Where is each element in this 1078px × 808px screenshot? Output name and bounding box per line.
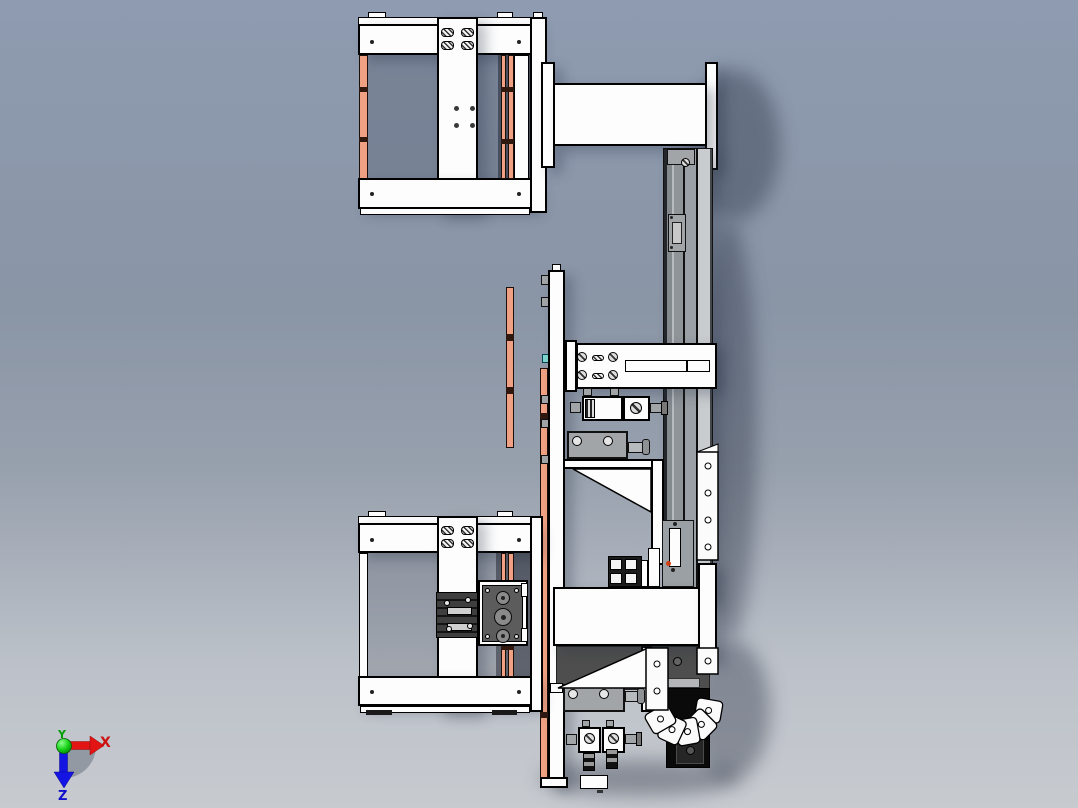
slot-hole: [461, 526, 474, 535]
frame-foot: [366, 710, 392, 715]
bracket-strip: [669, 528, 681, 567]
valve-port: [630, 402, 642, 414]
rail-side-bracket-face: [672, 222, 682, 244]
arm-long-slot: [625, 360, 710, 372]
air-nozzle: [606, 749, 618, 769]
fitting-stub: [566, 734, 577, 745]
solenoid-cap: [610, 559, 622, 570]
solenoid-cap: [625, 559, 637, 570]
upper-frame-right-bracket[interactable]: [514, 55, 529, 179]
pin-hole: [454, 106, 459, 111]
copper-break: [506, 387, 514, 394]
x-axis-arrowhead: [90, 736, 104, 755]
slot-hole: [441, 28, 454, 37]
slot-hole: [441, 41, 454, 50]
screw-dot: [370, 538, 374, 542]
slot-hole: [461, 41, 474, 50]
screw-dot: [517, 40, 521, 44]
triad-quarter-disc: [64, 746, 96, 778]
upper-frame-tab: [368, 12, 386, 18]
gripper-screw: [467, 623, 473, 629]
copper-break: [501, 139, 514, 144]
upper-frame-bottom-bar[interactable]: [358, 178, 535, 209]
copper-break: [506, 334, 514, 341]
gripper-screw: [514, 588, 519, 593]
lower-frame-bottom-bar[interactable]: [358, 676, 535, 706]
z-axis-label: Z: [58, 789, 67, 804]
valve-port: [608, 733, 619, 744]
orange-indicator: [666, 561, 671, 566]
screw-dot: [370, 192, 374, 196]
valve-port: [584, 733, 595, 744]
shadow: [540, 760, 740, 796]
frame-foot: [492, 710, 517, 715]
x-axis-label: X: [100, 735, 111, 751]
gripper-slot: [447, 607, 472, 615]
slot-hole: [441, 526, 454, 535]
cylinder-rod-cap: [642, 439, 650, 455]
origin-ball: [57, 739, 72, 754]
screw-dot: [673, 522, 677, 526]
gripper-boss-hole: [501, 615, 506, 620]
screw-dot: [517, 538, 521, 542]
solenoid-cap: [625, 573, 637, 584]
step-block: [648, 548, 660, 587]
z-axis-arrowhead: [54, 772, 74, 788]
copper-strip-left[interactable]: [359, 55, 368, 179]
gripper-screw: [444, 600, 450, 606]
fitting-stub: [583, 388, 592, 396]
pin-hole: [470, 106, 475, 111]
gripper-screw: [485, 588, 490, 593]
cylinder-rod-cap: [637, 688, 645, 704]
cylinder-port: [599, 689, 609, 699]
cylinder-port: [572, 436, 582, 446]
screw-dot: [670, 246, 673, 249]
solenoid-cap: [610, 573, 622, 584]
lower-frame-left-column[interactable]: [359, 553, 368, 677]
gripper-tab: [521, 628, 528, 642]
arm-bolt: [577, 370, 587, 380]
screw-dot: [370, 690, 374, 694]
slot-hole: [441, 539, 454, 548]
bottom-foot: [540, 777, 568, 788]
orientation-triad[interactable]: Y X Z: [54, 728, 111, 804]
arm-slot: [592, 355, 604, 361]
rail-bolt: [681, 158, 690, 167]
screw-dot: [370, 40, 374, 44]
fitting-stub: [610, 388, 619, 396]
gripper-boss-hole: [501, 596, 505, 600]
screw-dot: [517, 690, 521, 694]
lower-plate-right-cap[interactable]: [698, 563, 717, 660]
z-axis-arrow: [60, 748, 68, 774]
sensor-strip[interactable]: [506, 287, 514, 448]
screw-dot: [671, 568, 675, 572]
gripper-screw: [465, 597, 471, 603]
gusset-mid[interactable]: [573, 469, 651, 512]
bottom-mark: [597, 790, 603, 793]
fitting-stub: [570, 402, 581, 413]
arm-bolt: [577, 352, 587, 362]
arm-bolt: [608, 352, 618, 362]
gripper-screw: [446, 626, 452, 632]
copper-break: [359, 87, 368, 92]
housing-strip: [655, 678, 700, 688]
upper-plate-web[interactable]: [553, 83, 707, 146]
cylinder-tab: [550, 683, 563, 693]
y-axis-label: Y: [57, 728, 67, 741]
pin-hole: [454, 123, 459, 128]
lower-frame-right-bar[interactable]: [530, 516, 543, 712]
gripper-screw: [514, 634, 519, 639]
arm-slot-divider: [686, 361, 688, 371]
copper-break: [359, 137, 368, 142]
bracket-shelf[interactable]: [563, 459, 664, 469]
copper-strip-right[interactable]: [501, 55, 506, 179]
gripper-screw: [485, 634, 490, 639]
lower-frame-tab: [497, 511, 513, 517]
gripper-tab: [521, 583, 528, 597]
gripper-rail-block[interactable]: [436, 592, 478, 638]
upper-frame-bottom-strip: [360, 208, 530, 215]
fitting-stub: [606, 720, 614, 727]
slot-hole: [461, 539, 474, 548]
fitting-cap: [636, 732, 642, 746]
upper-frame-tab: [533, 12, 543, 18]
bottom-step: [580, 775, 608, 789]
air-nozzle: [583, 753, 595, 771]
cylinder-port: [603, 436, 613, 446]
valve-coil: [585, 399, 595, 418]
cylinder-port: [568, 689, 578, 699]
arm-bolt: [608, 370, 618, 380]
anchor-hole: [686, 746, 695, 755]
cad-viewport[interactable]: Y X Z: [0, 0, 1078, 808]
housing-screw: [673, 657, 682, 666]
screw-dot: [517, 192, 521, 196]
x-axis-arrow: [66, 742, 90, 750]
lower-frame-tab: [368, 511, 386, 517]
fitting-cap: [661, 401, 668, 415]
copper-break: [540, 712, 548, 718]
upper-frame-tab: [497, 12, 513, 18]
fitting-stub: [582, 720, 590, 727]
pin-hole: [470, 123, 475, 128]
arm-slot: [592, 373, 604, 379]
screw-dot: [670, 216, 673, 219]
slot-hole: [461, 28, 474, 37]
gripper-boss-hole: [501, 634, 505, 638]
lower-plate-web[interactable]: [553, 587, 705, 646]
copper-break: [501, 87, 514, 92]
